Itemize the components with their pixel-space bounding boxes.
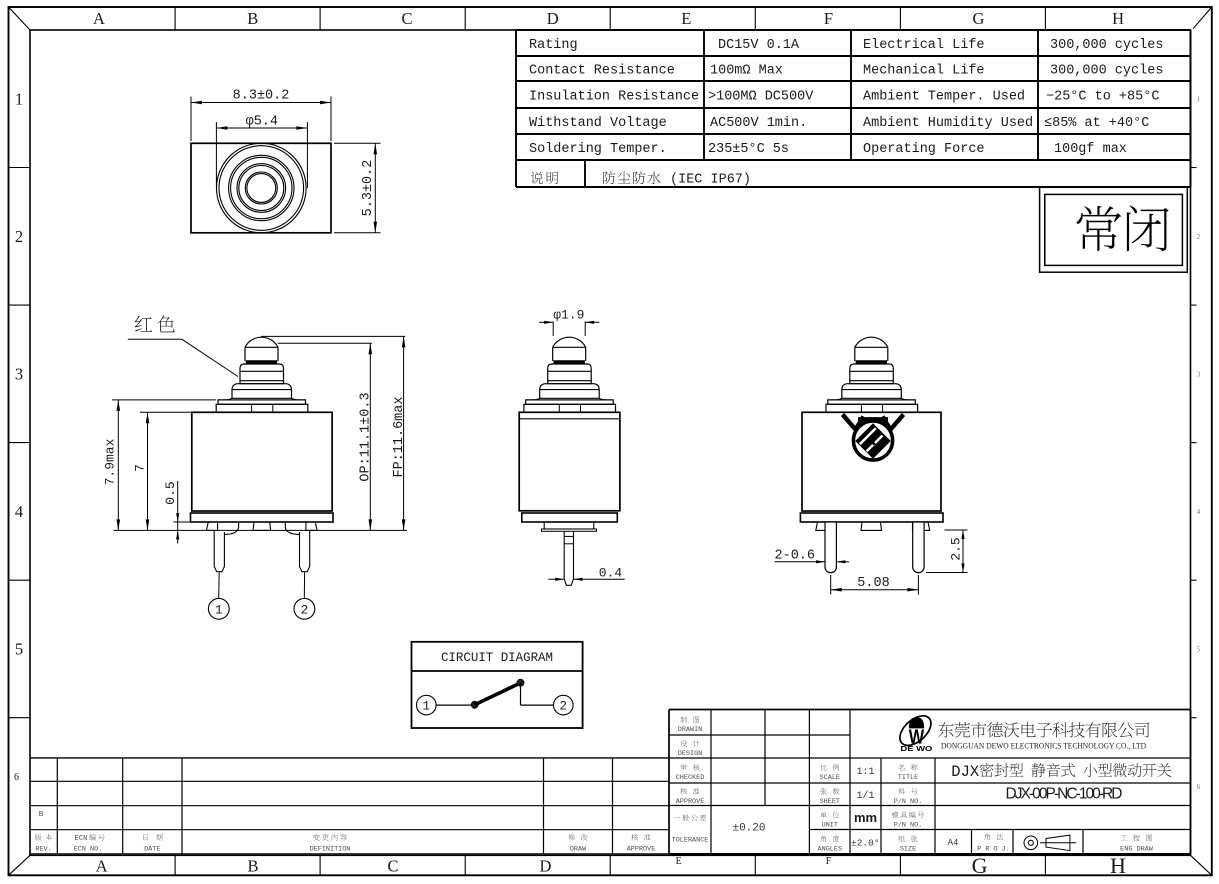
svg-text:APPROVE: APPROVE: [676, 798, 705, 806]
svg-text:−25°C to +85°C: −25°C to +85°C: [1046, 89, 1159, 104]
svg-text:DRAWIN: DRAWIN: [678, 726, 702, 734]
svg-text:0.5: 0.5: [163, 481, 178, 504]
svg-text:4: 4: [15, 502, 23, 521]
svg-text:Insulation Resistance: Insulation Resistance: [529, 89, 699, 104]
svg-text:F: F: [824, 9, 833, 28]
svg-text:6: 6: [1197, 783, 1201, 791]
svg-text:DEFINITION: DEFINITION: [310, 845, 351, 853]
svg-text:DE WO: DE WO: [900, 744, 932, 753]
svg-text:F: F: [826, 856, 832, 867]
svg-text:SCALE: SCALE: [820, 774, 840, 782]
svg-text:Rating: Rating: [529, 38, 578, 53]
svg-text:1: 1: [1197, 95, 1201, 103]
svg-text:ENG DRAW: ENG DRAW: [1120, 845, 1154, 853]
svg-text:P R O J.: P R O J.: [977, 845, 1010, 853]
svg-text:2: 2: [300, 602, 308, 617]
svg-text:B: B: [39, 811, 44, 819]
svg-text:300,000 cycles: 300,000 cycles: [1050, 63, 1163, 78]
svg-text:2: 2: [1197, 233, 1201, 241]
svg-text:E: E: [681, 9, 691, 28]
svg-text:mm: mm: [854, 810, 877, 825]
svg-text:OP:11.1±0.3: OP:11.1±0.3: [359, 392, 374, 481]
svg-text:Ambient Humidity Used: Ambient Humidity Used: [863, 116, 1033, 131]
svg-text:≤85% at +40°C: ≤85% at +40°C: [1044, 116, 1149, 131]
svg-text:C: C: [401, 9, 412, 28]
svg-text:1: 1: [423, 700, 431, 714]
svg-text:φ5.4: φ5.4: [246, 115, 278, 130]
svg-text:100gf max: 100gf max: [1054, 142, 1127, 157]
svg-text:P/N NO.: P/N NO.: [894, 798, 923, 806]
svg-text:1/1: 1/1: [856, 790, 874, 802]
svg-text:Ambient Temper. Used: Ambient Temper. Used: [863, 89, 1025, 104]
svg-text:FP:11.6max: FP:11.6max: [392, 396, 407, 477]
svg-text:H: H: [1112, 9, 1124, 28]
svg-text:UNIT: UNIT: [822, 821, 838, 829]
svg-text:APPROVE: APPROVE: [627, 845, 656, 853]
svg-text:CHECKED: CHECKED: [676, 774, 705, 782]
svg-text:Soldering Temper.: Soldering Temper.: [529, 142, 667, 157]
svg-text:3: 3: [15, 364, 23, 383]
svg-text:B: B: [247, 857, 258, 876]
svg-text:2: 2: [560, 700, 568, 714]
svg-text:REV.: REV.: [35, 845, 51, 853]
svg-text:SIZE: SIZE: [900, 845, 916, 853]
svg-text:C: C: [387, 857, 398, 876]
svg-text:Mechanical Life: Mechanical Life: [863, 63, 985, 78]
svg-text:D: D: [540, 857, 552, 876]
svg-text:2.5: 2.5: [949, 537, 964, 560]
svg-text:1:1: 1:1: [856, 767, 874, 778]
svg-text:DESIGN: DESIGN: [678, 750, 702, 758]
svg-text:SHEET: SHEET: [820, 798, 840, 806]
svg-text:A4: A4: [948, 838, 959, 848]
svg-text:Contact Resistance: Contact Resistance: [529, 63, 675, 78]
svg-text:DJX-00P-NC-100-RD: DJX-00P-NC-100-RD: [1006, 785, 1123, 802]
svg-text:2-0.6: 2-0.6: [775, 549, 816, 564]
svg-text:0.4: 0.4: [599, 565, 623, 580]
svg-text:1: 1: [15, 89, 23, 108]
svg-text:235±5°C 5s: 235±5°C 5s: [708, 142, 789, 157]
svg-text:±0.20: ±0.20: [732, 823, 765, 835]
svg-text:CIRCUIT DIAGRAM: CIRCUIT DIAGRAM: [441, 651, 553, 665]
svg-text:DJX: DJX: [951, 763, 980, 781]
svg-text:5: 5: [1197, 646, 1201, 654]
svg-text:(IEC IP67): (IEC IP67): [670, 172, 751, 187]
svg-text:7.9max: 7.9max: [102, 438, 117, 485]
svg-text:P/N NO.: P/N NO.: [894, 821, 923, 829]
svg-text:ECN: ECN: [75, 835, 88, 843]
svg-text:Withstand Voltage: Withstand Voltage: [529, 116, 667, 131]
svg-text:100mΩ Max: 100mΩ Max: [710, 63, 783, 78]
svg-text:TITLE: TITLE: [898, 774, 918, 782]
svg-text:5.08: 5.08: [857, 576, 889, 591]
svg-text:AC500V 1min.: AC500V 1min.: [710, 116, 807, 131]
svg-text:E: E: [676, 856, 682, 867]
svg-text:4: 4: [1197, 508, 1201, 516]
svg-text:1: 1: [215, 602, 223, 617]
svg-text:DATE: DATE: [144, 845, 160, 853]
svg-text:8.3±0.2: 8.3±0.2: [233, 89, 290, 104]
svg-text:3: 3: [1197, 370, 1201, 378]
svg-text:ECN NO.: ECN NO.: [74, 845, 103, 853]
svg-text:DRAW: DRAW: [570, 845, 587, 853]
svg-text:A: A: [93, 9, 105, 28]
svg-text:G: G: [972, 853, 988, 878]
svg-text:D: D: [547, 9, 559, 28]
svg-text:5: 5: [15, 640, 23, 659]
svg-text:>100MΩ DC500V: >100MΩ DC500V: [708, 89, 814, 104]
svg-text:6: 6: [14, 772, 19, 783]
svg-text:Operating Force: Operating Force: [863, 142, 985, 157]
svg-text:A: A: [96, 857, 108, 876]
svg-text:300,000 cycles: 300,000 cycles: [1050, 38, 1163, 53]
svg-text:±2.0°: ±2.0°: [851, 838, 880, 849]
svg-text:DONGGUAN DEWO ELECTRONICS TECH: DONGGUAN DEWO ELECTRONICS TECHNOLOGY CO.…: [941, 742, 1146, 751]
svg-text:ANGLES: ANGLES: [818, 845, 842, 853]
svg-text:B: B: [247, 9, 258, 28]
svg-text:G: G: [972, 9, 984, 28]
svg-text:5.3±0.2: 5.3±0.2: [361, 160, 376, 217]
svg-text:7: 7: [133, 464, 148, 472]
svg-text:Electrical Life: Electrical Life: [863, 38, 985, 53]
svg-text:H: H: [1110, 853, 1126, 878]
svg-text:TOLERANCE: TOLERANCE: [672, 837, 709, 845]
svg-text:DC15V 0.1A: DC15V 0.1A: [718, 38, 800, 53]
svg-text:φ1.9: φ1.9: [553, 307, 584, 322]
svg-text:2: 2: [15, 227, 23, 246]
